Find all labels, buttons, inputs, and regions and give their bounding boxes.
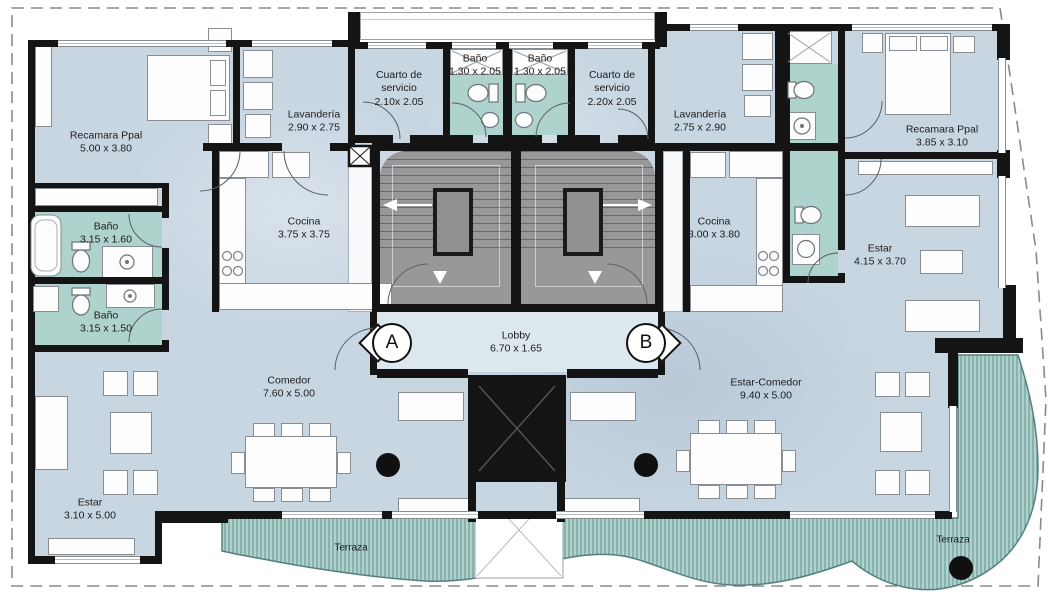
room-label-cuarto-servicio-b: Cuarto de servicio 2.20x 2.05 [579, 69, 645, 109]
room-label-recamara-ppal-b: Recamara Ppal 3.85 x 3.10 [887, 124, 997, 151]
floor-plan: Recamara Ppal 5.00 x 3.80 Lavandería 2.9… [0, 0, 1055, 600]
room-name: Cocina [674, 216, 754, 229]
room-label-bano-core-a: Baño 1.30 x 2.05 [443, 53, 507, 80]
room-label-bano-core-b: Baño 1.30 x 2.05 [508, 53, 572, 80]
room-name: Lavandería [274, 109, 354, 122]
room-name: Recamara Ppal [51, 130, 161, 143]
room-name: Estar [50, 497, 130, 510]
column [376, 453, 400, 477]
room-dims: 5.00 x 3.80 [51, 143, 161, 156]
room-label-bano-a1: Baño 3.15 x 1.60 [66, 221, 146, 248]
room-name: Lobby [471, 330, 561, 343]
room-label-comedor-a: Comedor 7.60 x 5.00 [244, 375, 334, 402]
room-dims: 1.30 x 2.05 [508, 66, 572, 79]
room-name: Baño [66, 310, 146, 323]
room-dims: 7.60 x 5.00 [244, 388, 334, 401]
room-dims: 3.00 x 3.80 [674, 229, 754, 242]
stove-burners [223, 252, 779, 276]
sink-icon [482, 113, 533, 128]
room-name: Baño [443, 53, 507, 66]
room-label-cocina-a: Cocina 3.75 x 3.75 [264, 216, 344, 243]
room-label-bano-a2: Baño 3.15 x 1.50 [66, 310, 146, 337]
room-label-lavanderia-a: Lavandería 2.90 x 2.75 [274, 109, 354, 136]
room-dims: 3.85 x 3.10 [887, 137, 997, 150]
room-label-cuarto-servicio-a: Cuarto de servicio 2.10x 2.05 [366, 69, 432, 109]
fixtures-layer [0, 0, 1055, 600]
unit-b-marker: B [626, 323, 666, 363]
room-label-estar-b: Estar 4.15 x 3.70 [840, 243, 920, 270]
room-name: Estar [840, 243, 920, 256]
room-label-lobby: Lobby 6.70 x 1.65 [471, 330, 561, 357]
unit-a-marker: A [372, 323, 412, 363]
room-name: Terraza [918, 535, 988, 548]
room-dims: 2.90 x 2.75 [274, 122, 354, 135]
room-name: Cocina [264, 216, 344, 229]
room-label-recamara-ppal-a: Recamara Ppal 5.00 x 3.80 [51, 130, 161, 157]
room-name: Cuarto de servicio [579, 69, 645, 96]
room-name: Estar-Comedor [711, 377, 821, 390]
room-dims: 9.40 x 5.00 [711, 390, 821, 403]
room-dims: 3.10 x 5.00 [50, 510, 130, 523]
room-name: Lavandería [660, 109, 740, 122]
duct-icon [349, 146, 371, 166]
room-dims: 6.70 x 1.65 [471, 343, 561, 356]
unit-a-letter: A [386, 332, 399, 354]
room-dims: 3.15 x 1.50 [66, 323, 146, 336]
room-dims: 2.75 x 2.90 [660, 122, 740, 135]
room-dims: 3.75 x 3.75 [264, 229, 344, 242]
room-label-cocina-b: Cocina 3.00 x 3.80 [674, 216, 754, 243]
column [634, 453, 658, 477]
room-name: Baño [66, 221, 146, 234]
room-dims: 4.15 x 3.70 [840, 256, 920, 269]
room-name: Terraza [316, 543, 386, 556]
room-label-terraza-b: Terraza [918, 535, 988, 548]
room-dims: 2.20x 2.05 [579, 96, 645, 109]
room-name: Comedor [244, 375, 334, 388]
room-label-lavanderia-b: Lavandería 2.75 x 2.90 [660, 109, 740, 136]
room-label-estar-comedor-b: Estar-Comedor 9.40 x 5.00 [711, 377, 821, 404]
column [949, 556, 973, 580]
room-label-terraza-a: Terraza [316, 543, 386, 556]
room-label-estar-a: Estar 3.10 x 5.00 [50, 497, 130, 524]
room-dims: 1.30 x 2.05 [443, 66, 507, 79]
room-name: Baño [508, 53, 572, 66]
stair-arrow [383, 199, 652, 284]
room-name: Recamara Ppal [887, 124, 997, 137]
bathtub-icon [31, 215, 61, 276]
room-dims: 3.15 x 1.60 [66, 234, 146, 247]
unit-b-letter: B [640, 332, 653, 354]
room-name: Cuarto de servicio [366, 69, 432, 96]
room-dims: 2.10x 2.05 [366, 96, 432, 109]
